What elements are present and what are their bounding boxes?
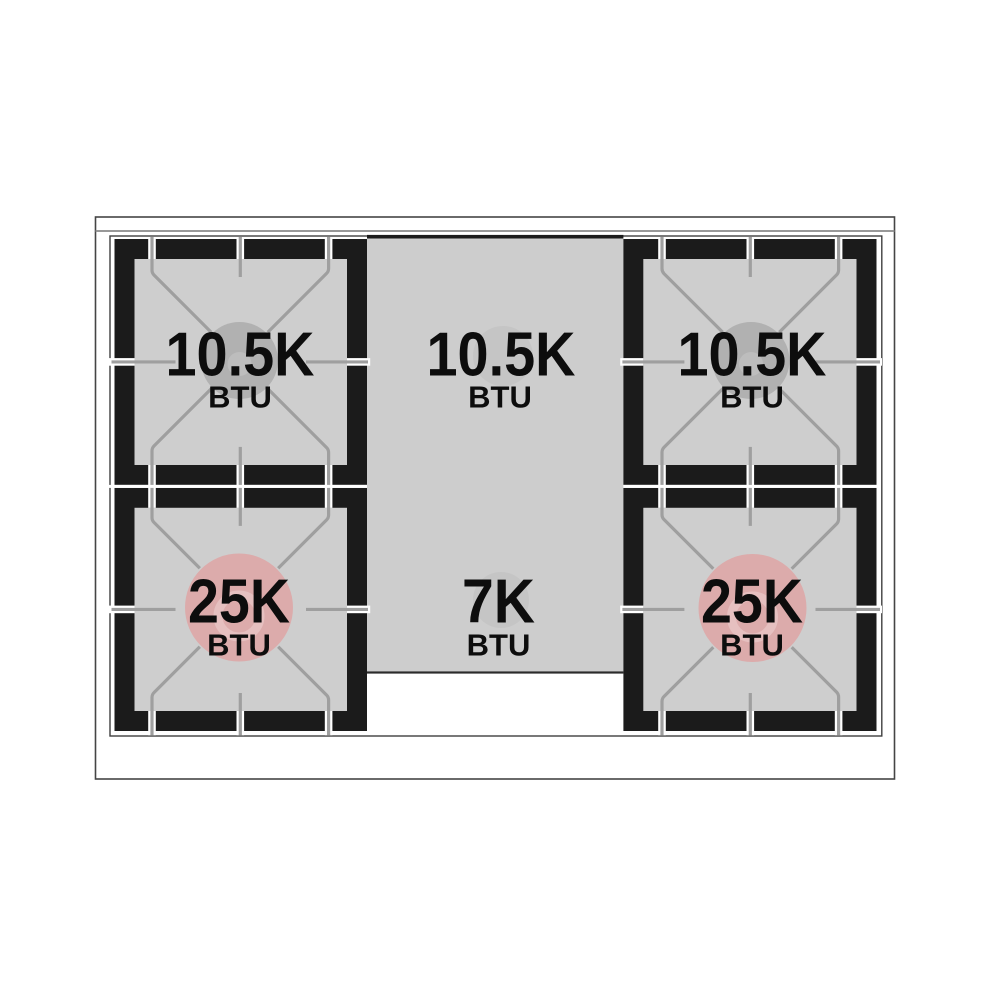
svg-text:BTU: BTU xyxy=(468,380,532,415)
svg-text:BTU: BTU xyxy=(207,628,271,663)
svg-text:7K: 7K xyxy=(462,568,535,637)
svg-text:BTU: BTU xyxy=(467,628,531,663)
svg-text:BTU: BTU xyxy=(720,628,784,663)
svg-text:25K: 25K xyxy=(701,568,803,637)
svg-text:BTU: BTU xyxy=(720,380,784,415)
svg-text:BTU: BTU xyxy=(208,380,272,415)
svg-text:25K: 25K xyxy=(188,568,290,637)
